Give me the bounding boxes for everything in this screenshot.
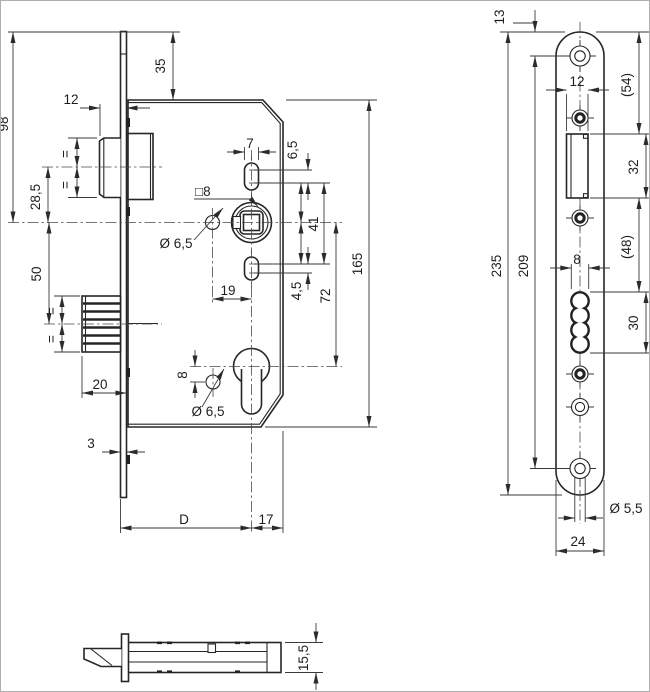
dim-label-dia-5-5: Ø 5,5 — [609, 501, 642, 516]
dim-label-35: 35 — [153, 58, 168, 73]
latch-opening — [567, 134, 589, 198]
equal-mark: = — [58, 181, 73, 189]
dim-label-209: 209 — [516, 255, 531, 278]
dim-label-17: 17 — [258, 512, 273, 527]
technical-drawing-page: 98 35 12 28,5 = = 50 = = 20 3 7 6,5 □8 Ø… — [0, 0, 650, 692]
dim-label-D: D — [179, 512, 189, 527]
dim-label-50: 50 — [29, 266, 44, 281]
bottom-view-case: 15,5 — [84, 623, 323, 690]
dim-label-32: 32 — [626, 159, 641, 174]
lock-drawing-svg: 98 35 12 28,5 = = 50 = = 20 3 7 6,5 □8 Ø… — [0, 0, 650, 692]
dim-label-235: 235 — [489, 255, 504, 278]
dim-label-28-5: 28,5 — [28, 184, 43, 210]
dim-label-7: 7 — [246, 136, 254, 151]
dim-label-4-5: 4,5 — [289, 282, 304, 301]
latch-rear-body — [128, 134, 153, 200]
hub-projection — [208, 644, 216, 653]
dim-label-square-8: □8 — [195, 184, 211, 199]
dim-label-19: 19 — [220, 283, 235, 298]
equal-mark: = — [44, 307, 59, 315]
dim-label-165: 165 — [350, 253, 365, 276]
dim-label-dia-6-5-lower: Ø 6,5 — [191, 404, 224, 419]
dim-label-30: 30 — [626, 315, 641, 330]
deadbolt-slot — [571, 292, 588, 352]
dim-label-6-5: 6,5 — [285, 141, 300, 160]
dim-label-12-latch: 12 — [63, 92, 78, 107]
dim-label-8-cyl: 8 — [175, 371, 190, 379]
dim-label-20: 20 — [92, 377, 107, 392]
dim-label-98: 98 — [0, 116, 11, 131]
left-view-lock-case: 98 35 12 28,5 = = 50 = = 20 3 7 6,5 □8 Ø… — [0, 32, 377, 534]
equal-mark: = — [58, 150, 73, 158]
dim-label-24: 24 — [570, 534, 586, 549]
dim-label-8-slot: 8 — [573, 252, 581, 267]
dim-label-54: (54) — [619, 73, 634, 97]
right-view-faceplate: 13 235 209 (54) 32 (48) 30 12 8 Ø 5,5 24 — [489, 9, 650, 556]
dim-label-48: (48) — [619, 235, 634, 259]
dim-label-13: 13 — [492, 9, 507, 24]
faceplate-edge — [121, 32, 127, 498]
dim-label-3: 3 — [87, 436, 95, 451]
dim-label-41: 41 — [306, 216, 321, 231]
dim-label-72: 72 — [318, 288, 333, 303]
equal-mark: = — [44, 335, 59, 343]
dim-label-12-plate: 12 — [569, 74, 584, 89]
case-bottom-outline — [128, 643, 281, 673]
latch-bottom-fill — [84, 649, 122, 667]
latch-head-fill — [100, 138, 121, 198]
dim-label-15-5: 15,5 — [296, 645, 311, 671]
faceplate-section — [122, 634, 129, 682]
dim-label-dia-6-5-upper: Ø 6,5 — [159, 236, 192, 251]
